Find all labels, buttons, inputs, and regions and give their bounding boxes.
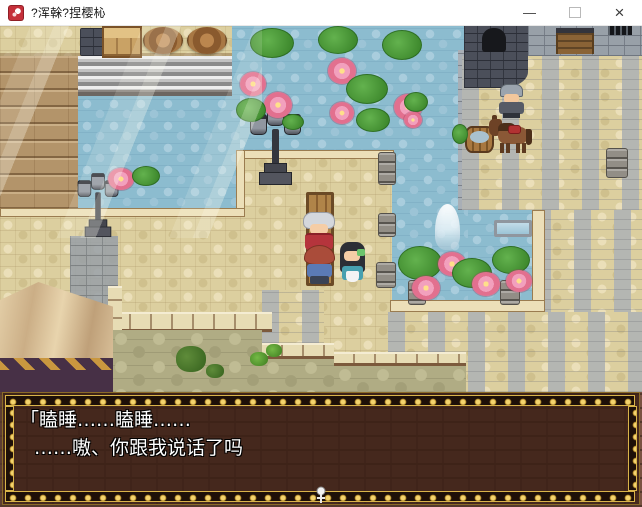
plant-bush: [176, 346, 206, 372]
lotus-flower: [412, 276, 440, 300]
child-red-hair: [304, 245, 335, 265]
soldier-npc: [497, 84, 526, 118]
pool-rim-right: [532, 210, 545, 306]
tent-base: [0, 358, 113, 392]
stone-pillar-stack: [376, 262, 396, 288]
lotus-flower: [472, 272, 500, 296]
maid-white-apron: [346, 271, 359, 282]
terrace-ledge-3: [334, 352, 466, 366]
maximize-icon: [569, 7, 581, 18]
horse-leg: [522, 143, 526, 153]
horse: [489, 115, 531, 155]
barrel: [187, 27, 227, 54]
terrace-ledge-1: [110, 312, 272, 332]
red-haired-child-npc: [303, 245, 336, 285]
lily-pad: [346, 74, 388, 104]
lamp-pole: [95, 192, 101, 221]
water-trough: [494, 220, 532, 237]
dialogue-text: 「瞌睡……瞌睡…… ……嗷、你跟我说话了吗: [20, 406, 243, 462]
plant-sprout: [206, 364, 224, 378]
stone-pillar-stack: [378, 152, 396, 185]
wooden-deck: [0, 56, 78, 210]
green-cobble-road-3: [334, 366, 466, 392]
lotus-flower: [506, 270, 532, 292]
window-title: ?浑榦?捏樱杺: [31, 4, 106, 21]
lily-pad: [404, 92, 428, 112]
horse-saddle: [508, 125, 521, 134]
pause-cursor-icon: [313, 485, 329, 505]
app-icon: [8, 5, 24, 21]
window-controls: — ×: [507, 0, 642, 25]
bucket-water: [470, 131, 489, 143]
horse-leg: [516, 143, 520, 153]
lily-pad: [382, 30, 422, 60]
close-button[interactable]: ×: [597, 0, 642, 25]
lamp-pole: [272, 129, 279, 165]
minimize-button[interactable]: —: [507, 0, 552, 25]
lily-pad: [250, 28, 294, 58]
maid-npc: [339, 242, 366, 288]
game-window: ?浑榦?捏樱杺 — ×: [0, 0, 642, 507]
horse-leg: [500, 143, 504, 153]
lily-pad: [282, 114, 304, 130]
stone-pillar-stack: [378, 213, 396, 237]
dialogue-border-right: [628, 406, 637, 491]
lamp-head-icon: [78, 180, 92, 197]
stone-pillar-stack: [606, 148, 628, 178]
maximize-button[interactable]: [552, 0, 597, 25]
horse-leg: [506, 143, 510, 153]
dialogue-border-left: [5, 406, 14, 491]
platform-rim-west: [0, 208, 245, 217]
stone-pedestal: [80, 28, 104, 56]
maid-hair-ribbon: [357, 249, 365, 256]
castle-wooden-gate: [556, 28, 594, 54]
lotus-flower: [330, 102, 354, 124]
lily-pad: [132, 166, 160, 186]
horse-tail: [526, 129, 532, 145]
tower-arch-window: [482, 28, 506, 52]
lotus-flower: [404, 112, 422, 128]
lily-pad: [452, 124, 468, 144]
title-bar[interactable]: ?浑榦?捏樱杺 — ×: [0, 0, 642, 26]
lamp-base: [85, 227, 111, 237]
plant-clover: [266, 344, 282, 357]
platform-rim-left: [236, 150, 245, 216]
lily-pad: [236, 98, 266, 122]
dialogue-border-top: [5, 395, 635, 406]
wooden-crate: [102, 26, 142, 58]
castle-window-grate: [608, 26, 632, 35]
dialogue-line-1: 「瞌睡……瞌睡……: [20, 406, 243, 434]
lily-pad: [398, 246, 442, 280]
game-viewport[interactable]: 「瞌睡……瞌睡…… ……嗷、你跟我说话了吗: [0, 26, 642, 507]
lotus-flower: [240, 72, 266, 96]
lily-pad: [356, 108, 390, 132]
green-cobble-road-2: [262, 359, 334, 392]
lily-pad: [492, 246, 530, 274]
child-legs: [310, 276, 329, 284]
ghost: [435, 204, 460, 250]
lily-pad: [318, 26, 358, 54]
dialogue-window[interactable]: 「瞌睡……瞌睡…… ……嗷、你跟我说话了吗: [2, 392, 640, 505]
lotus-flower: [108, 168, 134, 190]
lamp-base: [259, 172, 292, 185]
lamp-head-icon: [91, 173, 105, 190]
barrel: [143, 27, 183, 54]
plant-clover: [250, 352, 268, 366]
dialogue-line-2: ……嗷、你跟我说话了吗: [34, 434, 243, 462]
